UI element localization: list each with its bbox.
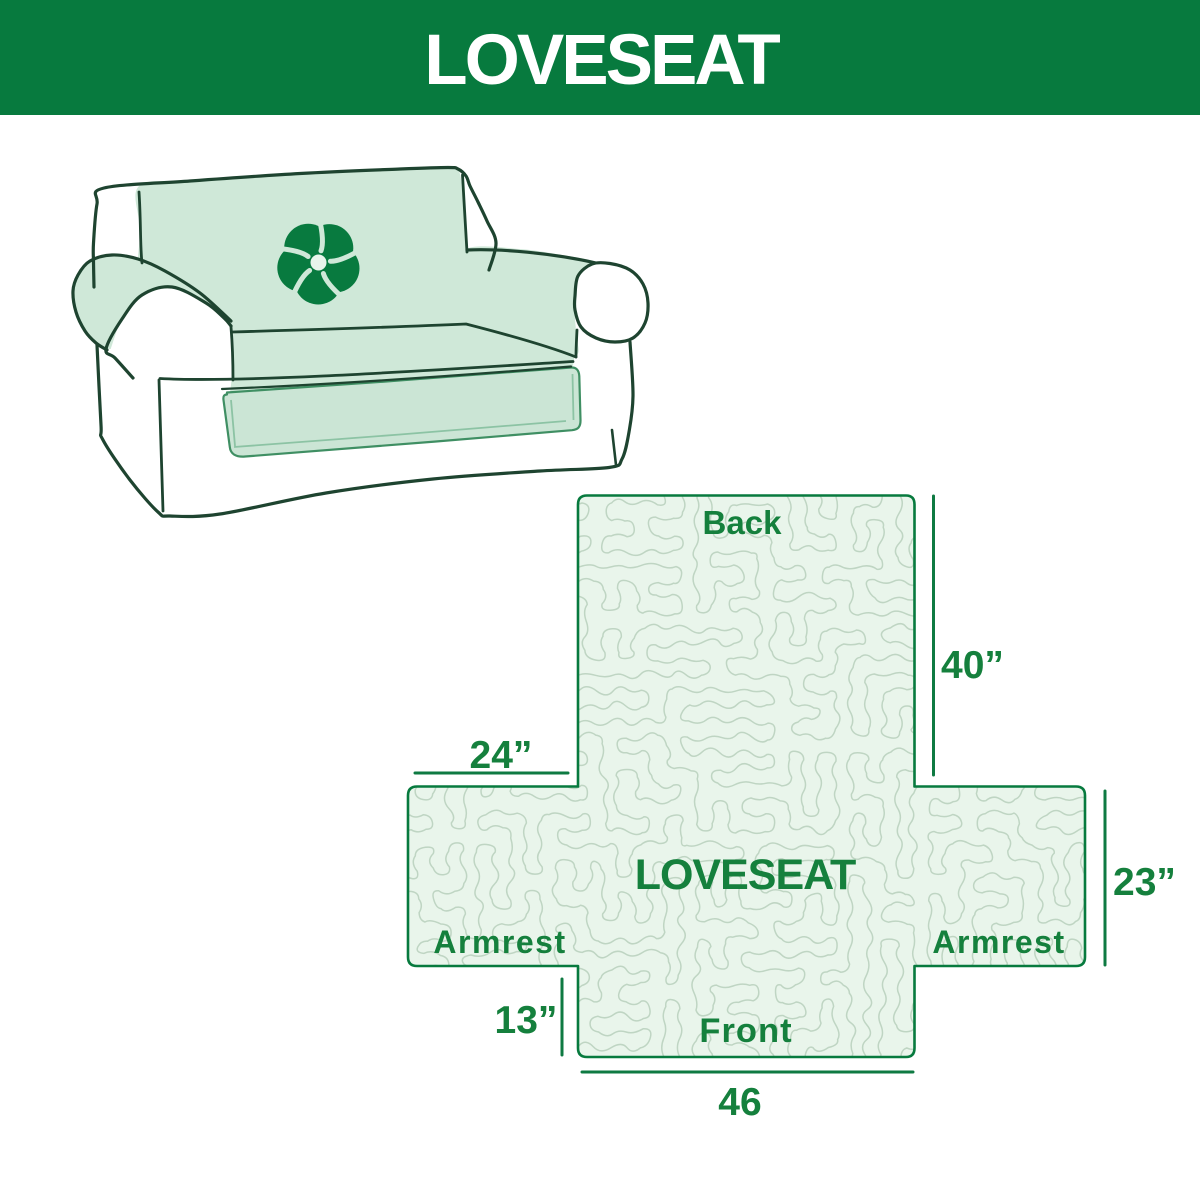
svg-text:Armrest: Armrest: [433, 924, 566, 960]
svg-text:13”: 13”: [495, 999, 558, 1042]
svg-text:Back: Back: [703, 504, 783, 541]
svg-text:40”: 40”: [941, 644, 1004, 687]
svg-text:Armrest: Armrest: [932, 924, 1065, 960]
svg-text:LOVESEAT: LOVESEAT: [424, 21, 780, 100]
svg-text:23”: 23”: [1113, 861, 1176, 904]
svg-text:LOVESEAT: LOVESEAT: [635, 851, 856, 899]
svg-text:24”: 24”: [470, 734, 533, 777]
svg-text:Front: Front: [699, 1012, 792, 1050]
svg-text:46: 46: [718, 1081, 761, 1124]
